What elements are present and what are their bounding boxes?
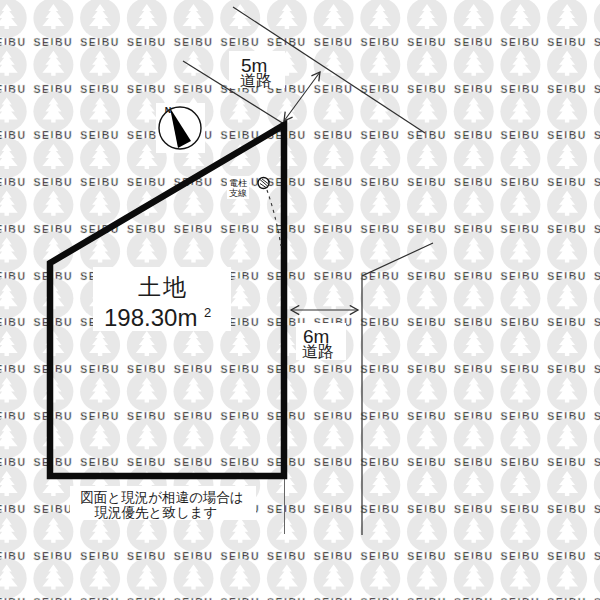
road-6m-edge-line (362, 243, 433, 535)
land-plot-drawing: SEIBU N (0, 0, 600, 600)
disclaimer-line1: 図面と現況が相違の場合は (80, 490, 243, 505)
dimension-arrow-5m (284, 72, 320, 121)
plot-area: 198.30m 2 (104, 304, 211, 331)
road-5m-type-label: 道路 (240, 72, 272, 89)
plot-area-exponent: 2 (204, 305, 211, 320)
north-label: N (165, 105, 172, 115)
road-6m-type-label: 道路 (302, 343, 334, 360)
guy-wire-dashed-line (267, 190, 281, 246)
plot-area-value: 198.30m (104, 304, 197, 331)
plot-diagram-layer: N 5m 道路 6m 道路 電柱 支線 土地 198.30m 2 図面と現況が相… (0, 0, 600, 600)
utility-pole-icon (258, 178, 269, 189)
disclaimer-line2: 現況優先と致します (95, 505, 218, 520)
pole-label: 電柱 (229, 178, 248, 188)
plot-title: 土地 (138, 274, 188, 300)
wire-label: 支線 (229, 188, 247, 198)
